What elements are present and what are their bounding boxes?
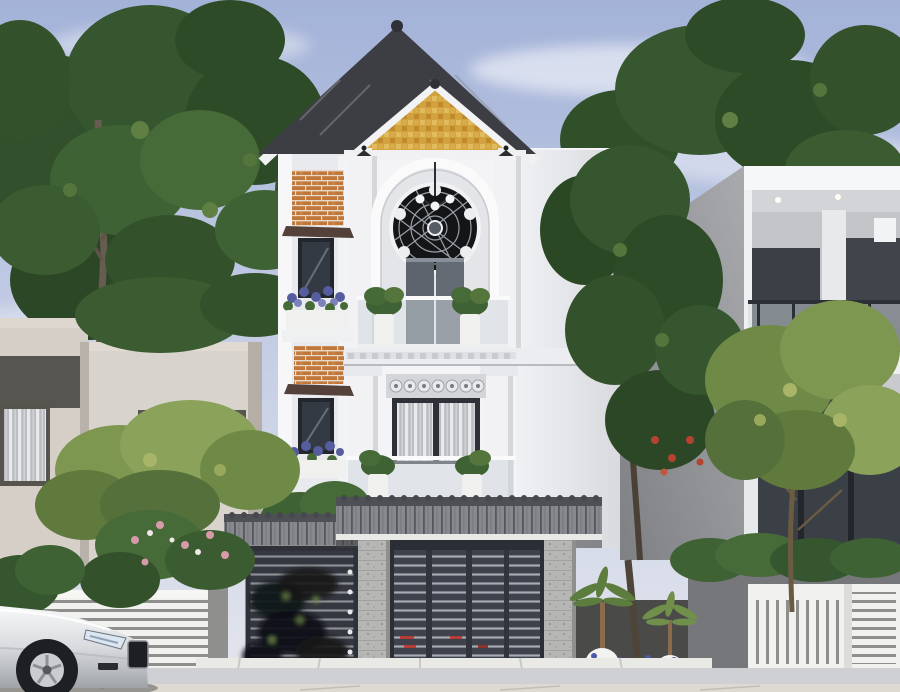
window-awning xyxy=(284,384,354,396)
rendering-canvas xyxy=(0,0,900,692)
french-doors xyxy=(392,398,480,464)
fence-right xyxy=(748,584,900,672)
left-building-recess xyxy=(0,356,84,408)
car-foglight xyxy=(98,662,118,670)
hedge xyxy=(670,533,900,582)
roof-finial xyxy=(391,20,403,32)
balcony-3f xyxy=(356,287,510,348)
car-grille xyxy=(128,641,148,668)
balcony-2f xyxy=(346,450,516,504)
brick-accent xyxy=(294,346,344,384)
scene-svg xyxy=(0,0,900,692)
brick-accent xyxy=(292,170,344,226)
frieze-panel xyxy=(386,374,486,398)
window-awning xyxy=(282,226,354,238)
